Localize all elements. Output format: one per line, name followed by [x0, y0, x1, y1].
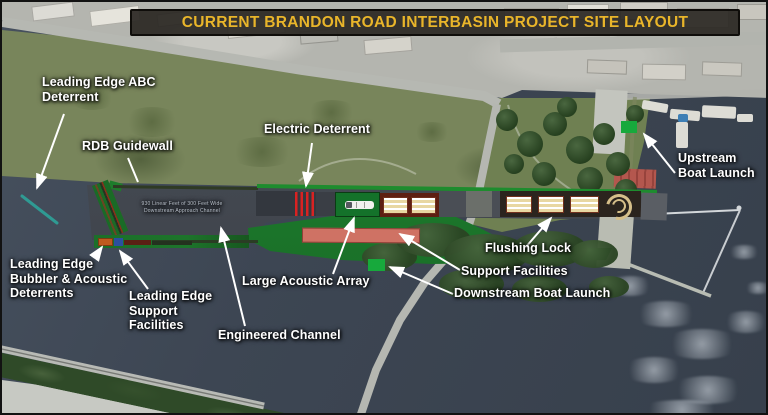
label-leading-edge-bubbler: Leading Edge Bubbler & Acoustic Deterren… — [10, 257, 127, 301]
leader-large-acoustic-array — [333, 218, 354, 274]
label-rdb-guidewall: RDB Guidewall — [82, 139, 173, 154]
leader-rdb-guidewall — [128, 158, 138, 182]
abc-deterrent-line-feature — [22, 196, 57, 223]
leader-bubbler-deterrents — [95, 247, 102, 257]
leader-support-facilities — [400, 234, 460, 270]
title-bar: CURRENT BRANDON ROAD INTERBASIN PROJECT … — [130, 9, 740, 36]
leader-abc-deterrent — [37, 114, 64, 188]
channel-dimension-note: 930 Linear Feet of 300 Feet Wide Downstr… — [131, 201, 233, 216]
label-leading-edge-abc-deterrent: Leading Edge ABC Deterrent — [42, 75, 156, 104]
label-large-acoustic-array: Large Acoustic Array — [242, 274, 370, 289]
annotation-leader-lines — [2, 2, 768, 415]
label-downstream-boat-launch: Downstream Boat Launch — [454, 286, 610, 301]
label-upstream-boat-launch: Upstream Boat Launch — [678, 151, 755, 180]
label-electric-deterrent: Electric Deterrent — [264, 122, 370, 137]
leader-electric-deterrent — [306, 143, 312, 186]
label-engineered-channel: Engineered Channel — [218, 328, 341, 343]
label-support-facilities: Support Facilities — [461, 264, 568, 279]
leader-upstream-boat-launch — [644, 134, 675, 173]
page-title: CURRENT BRANDON ROAD INTERBASIN PROJECT … — [182, 14, 688, 32]
label-leading-edge-support-facilities: Leading Edge Support Facilities — [129, 289, 212, 333]
site-layout-map: Leading Edge ABC Deterrent RDB Guidewall… — [0, 0, 768, 415]
label-flushing-lock: Flushing Lock — [485, 241, 571, 256]
leader-downstream-boat-launch — [390, 267, 453, 294]
